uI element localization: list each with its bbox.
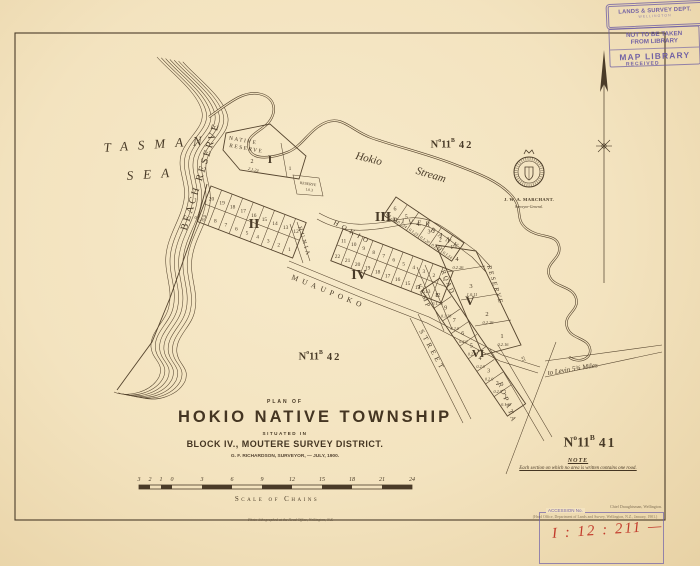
section-number: 9 [444, 306, 447, 312]
section-number: 18 [230, 205, 236, 211]
surveyor-credit: G. F. RICHARDSON, SURVEYOR, — JULY, 1900… [178, 454, 392, 459]
stream-outline [209, 93, 590, 360]
seal-title: Surveyor-General. [515, 205, 543, 209]
map-title: HOKIO NATIVE TOWNSHIP [178, 408, 392, 427]
scale-caption: Scale of Chains [235, 495, 319, 503]
tasman-sea-label: TASMAN [103, 132, 212, 155]
ref-sup: o [573, 433, 577, 442]
scale-tick-label: 12 [289, 477, 295, 483]
section-area: 0.2.0 [485, 377, 494, 382]
situated-in-label: SITUATED IN [178, 431, 392, 436]
section-area: 0.2.0 [476, 364, 485, 369]
section-area: 0.2.0 [459, 339, 468, 344]
section-number: 5 [246, 231, 249, 237]
ref-tail: 42 [459, 140, 474, 151]
section-number: 3 [428, 230, 431, 236]
section-number: 6 [394, 207, 397, 213]
stream-reserve-label: RESERVE [485, 264, 505, 306]
block-outline [436, 245, 521, 355]
section-number: 21 [345, 258, 351, 264]
scale-tick-label: 3 [200, 477, 204, 483]
section-number: 2 [439, 237, 442, 243]
section-number: 3 [267, 239, 270, 245]
coast-line [131, 60, 219, 397]
plan-of-label: PLAN OF [178, 399, 392, 405]
small-reserve-area: 1.0.3 [305, 188, 313, 193]
section-number: 8 [436, 293, 439, 299]
section-number: 13 [425, 289, 431, 295]
scale-tick-label: 9 [261, 477, 264, 483]
section-number: 2 [432, 273, 435, 279]
section-number: 10 [351, 242, 357, 248]
section-number: 6 [461, 331, 464, 337]
section-number: 6 [235, 227, 238, 233]
section-number: 19 [365, 266, 371, 272]
note-text: Each section on which no area is written… [498, 466, 658, 471]
section-number: 16 [395, 277, 401, 283]
section-number: 14 [415, 285, 421, 291]
section-area: 0.2.16 [498, 342, 510, 347]
map-note: NOTE Each section on which no area is wr… [498, 458, 658, 471]
ref-sup: B [319, 350, 323, 356]
sheet-ref-top: No11B42 [420, 139, 484, 151]
scale-bar-segment [161, 485, 172, 489]
section-area: 0.1.37 [501, 402, 512, 407]
seal-name: J. W. A. MARCHANT. [504, 197, 554, 202]
ref-num: 11 [309, 352, 319, 363]
scale-tick-label: 21 [379, 477, 385, 483]
scale-tick-label: 3 [137, 477, 141, 483]
section-number: 5 [470, 343, 473, 349]
scale-tick-label: 15 [319, 477, 325, 483]
section-number: 11 [341, 238, 346, 244]
section-number: 4 [416, 222, 419, 228]
compass-rose [596, 50, 612, 283]
section-number: 1 [504, 394, 507, 400]
section-number: 1 [450, 245, 453, 251]
coastline-hatching [114, 57, 228, 399]
ref-sup: o [438, 138, 441, 144]
section-number: 4 [412, 265, 415, 271]
ref-num: 11 [577, 435, 590, 450]
section-number: 18 [375, 270, 381, 276]
scale-tick-label: 6 [231, 477, 234, 483]
scale-bar-segment [262, 485, 292, 489]
section-number: 5 [402, 261, 405, 267]
block-outline [223, 124, 306, 179]
section-number: 17 [385, 273, 391, 279]
section-number: 15 [405, 281, 411, 287]
section-number: 19 [219, 201, 225, 207]
stream-water [209, 93, 590, 360]
section-number: 8 [372, 250, 375, 256]
section-number: 7 [453, 318, 456, 324]
section-number: 2 [485, 311, 488, 318]
print-credit: Chief Draughtsman, Wellington. [540, 504, 662, 509]
scale-tick-label: 1 [160, 477, 163, 483]
road-label-street: STREET [417, 328, 447, 373]
title-block: PLAN OF HOKIO NATIVE TOWNSHIP SITUATED I… [178, 399, 392, 459]
section-number: 20 [355, 262, 361, 268]
section-number: 9 [203, 214, 206, 220]
section-area: 0.1.28 [441, 314, 452, 319]
section-number: 7 [224, 222, 227, 228]
section-number: 4 [479, 356, 482, 362]
scale-bar-segment [382, 485, 412, 489]
section-number: 3 [487, 369, 490, 375]
print-office-credit: (Head Office, Department of Lands and Su… [527, 515, 663, 519]
section-number: 2 [496, 381, 499, 387]
section-number: 2 [277, 243, 280, 249]
section-number: 6 [392, 258, 395, 264]
seal-crown-icon [524, 150, 534, 154]
ref-num: 11 [441, 140, 451, 151]
section-number: 8 [214, 218, 217, 224]
scale-bar-segment [322, 485, 352, 489]
crest-seal-icon [514, 150, 544, 187]
section-area: 0.2.26 [483, 320, 495, 325]
block-V-outline [436, 245, 521, 355]
section-number: 3 [422, 269, 425, 275]
section-area: 0.2.0 [451, 326, 460, 331]
section-number: 9 [362, 246, 365, 252]
section-number: 12 [293, 229, 299, 235]
section-number: 22 [335, 254, 341, 260]
ref-tail: 41 [599, 435, 617, 450]
scale-tick-label: 2 [149, 477, 152, 483]
section-number: 2 [251, 159, 254, 165]
block-label-I: I [268, 152, 273, 166]
ref-tail: 42 [327, 352, 342, 363]
litho-imprint: Photo-lithographed at the Head Office, W… [248, 518, 334, 522]
ref-sup: B [451, 138, 455, 144]
section-number: 4 [455, 256, 459, 263]
section-number: 15 [262, 217, 268, 223]
section-number: 20 [209, 197, 215, 203]
section-number: 4 [256, 235, 259, 241]
note-heading: NOTE [498, 458, 658, 464]
section-number: 3 [469, 283, 472, 290]
scale-bar-segment [139, 485, 150, 489]
ref-sup: o [306, 350, 309, 356]
sheet-ref-right: No11B41 [548, 434, 632, 451]
section-area: 1.0.11 [467, 292, 478, 297]
lot-line [204, 204, 299, 241]
section-area: 0.1.33 [432, 301, 442, 306]
section-area: 0.2.0 [468, 351, 477, 356]
lot-line [281, 143, 287, 177]
map-sheet: TASMAN SEA Hokio Stream BEACH RESERVE NA… [0, 0, 700, 566]
road-label-ropata-st: ST [520, 356, 527, 363]
scale-tick-label: 18 [349, 477, 355, 483]
ref-sup: B [590, 433, 595, 442]
hokio-stream [209, 93, 590, 360]
section-number: 5 [405, 214, 408, 220]
district-label: BLOCK IV., MOUTERE SURVEY DISTRICT. [178, 439, 392, 449]
section-number: 1 [288, 247, 291, 253]
scale-bar-segment [202, 485, 232, 489]
road-to-levin [545, 345, 662, 361]
section-area: 0.2.0 [494, 389, 503, 394]
section-number: 16 [251, 213, 257, 219]
stream-name: Stream [414, 165, 447, 185]
section-number: 1 [289, 166, 292, 172]
road-label-to-levin: to Levin 5¾ Miles [547, 361, 598, 377]
small-reserve-label: RESERVE [300, 181, 318, 187]
map-canvas: TASMAN SEA Hokio Stream BEACH RESERVE NA… [0, 0, 700, 566]
received-stamp: RECEIVED [626, 60, 660, 67]
stream-name: Hokio [353, 150, 383, 169]
scale-tick-label: 24 [409, 476, 415, 483]
section-number: 7 [382, 254, 385, 260]
section-number: 1 [500, 333, 503, 340]
ref-n: N [564, 435, 574, 450]
section-number: 14 [272, 221, 278, 227]
section-number: 13 [283, 225, 289, 231]
section-number: 17 [241, 209, 247, 215]
sheet-ref-mid: No11B42 [288, 351, 352, 363]
scale-tick-label: 0 [171, 477, 174, 483]
tasman-sea-label: SEA [126, 164, 179, 183]
native-reserve-label: RESERVE [229, 143, 264, 155]
section-area: 0.2.26 [453, 265, 465, 270]
